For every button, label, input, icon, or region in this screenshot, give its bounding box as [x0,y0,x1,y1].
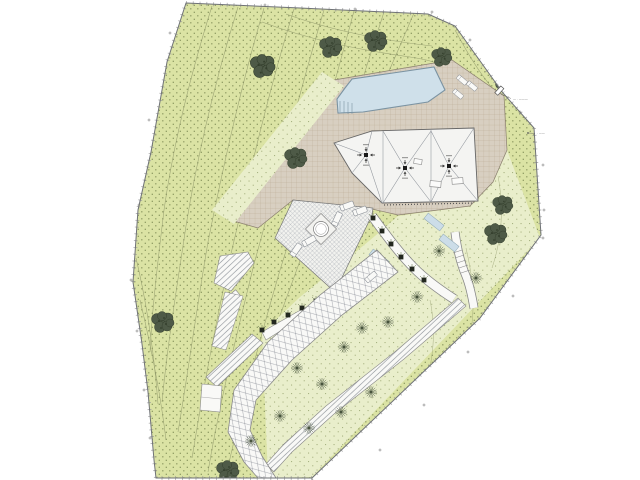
site-plan-canvas: — · ——— · —— [0,0,640,480]
annotation-lower-text: · —— [537,132,545,136]
tree [432,48,452,67]
tree [365,31,388,52]
tree [493,69,516,90]
tree [285,148,308,169]
annotation-upper-text: — · ——— [513,97,528,101]
site-plan-drawing: — · ——— · —— [0,0,640,480]
tree [152,312,175,333]
tree [320,37,343,58]
leader-dot [527,132,529,134]
tree [217,461,240,480]
tree [250,54,275,77]
tree [485,224,508,245]
tree [493,196,513,215]
